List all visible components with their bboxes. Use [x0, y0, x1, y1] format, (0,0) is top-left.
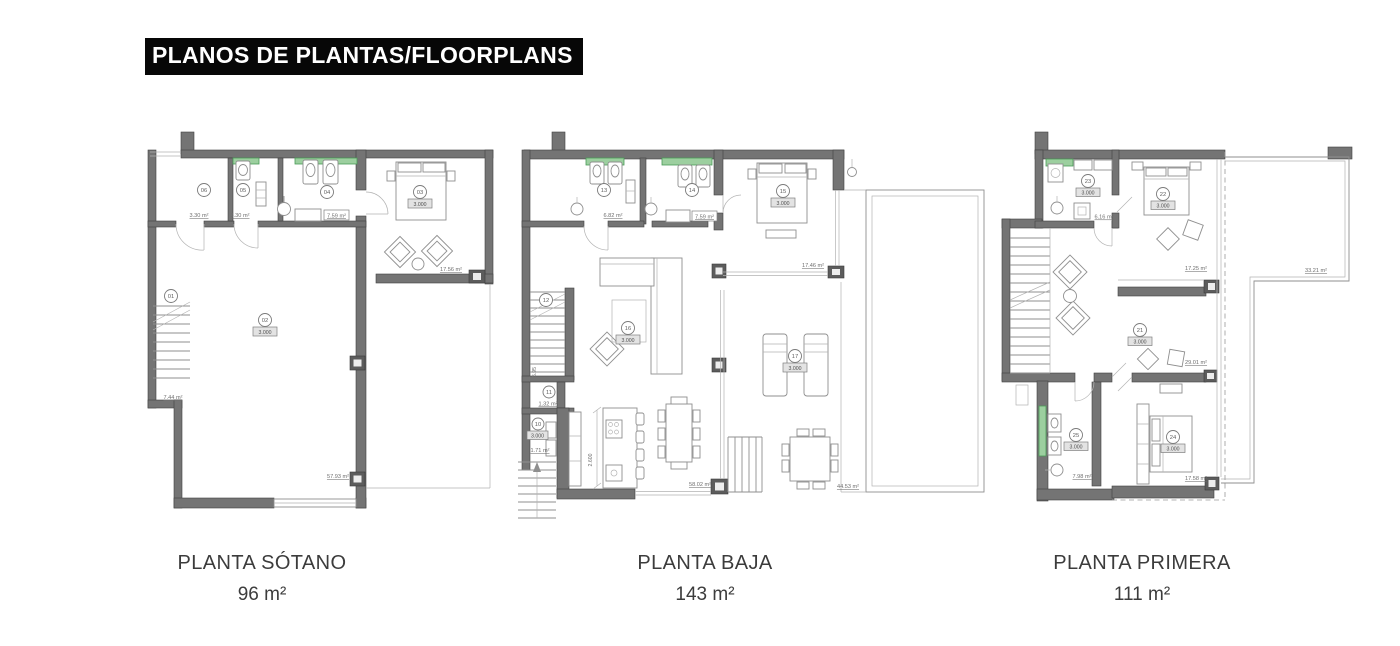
room-height: 3.000 — [259, 330, 272, 336]
ac-unit-icon — [1016, 385, 1028, 405]
plan-total-area: 143 m² — [555, 584, 855, 606]
room-area: 7.44 m² — [164, 395, 183, 401]
room-height: 3.000 — [414, 202, 427, 208]
floorplans-svg: 06 3.30 m² 05 3.30 m² 04 7.59 m² 03 3.00… — [0, 0, 1400, 646]
bench-icon — [766, 230, 796, 238]
stair-dimension: 5.95 — [532, 367, 538, 377]
room-number: 24 — [1170, 435, 1177, 441]
room-number: 14 — [689, 188, 696, 194]
stairs-icon — [153, 302, 190, 378]
room-area: 17.25 m² — [1185, 266, 1207, 272]
labels: 06 3.30 m² 05 3.30 m² 04 7.59 m² 03 3.00… — [164, 184, 463, 481]
room-height: 3.000 — [622, 338, 635, 344]
plan-name: PLANTA BAJA — [555, 552, 855, 575]
room-number: 01 — [168, 294, 174, 300]
room-area: 1.71 m² — [531, 448, 550, 454]
floorplan-sheet: PLANOS DE PLANTAS/FLOORPLANS — [0, 0, 1400, 646]
floorplan-baja: 13 6.82 m² 14 7.59 m² 15 3.000 17.46 m² … — [518, 132, 984, 518]
room-height: 3.000 — [789, 366, 802, 372]
room-height: 3.000 — [531, 434, 544, 440]
plan-name: PLANTA PRIMERA — [992, 552, 1292, 575]
plan-total-area: 96 m² — [112, 584, 412, 606]
toilet-icon — [1051, 202, 1063, 214]
room-area: 17.46 m² — [802, 263, 824, 269]
room-area: 17.56 m² — [440, 267, 462, 273]
terrace — [728, 334, 838, 492]
kitchen-dimension: 2.600 — [588, 453, 594, 466]
armchair-icons — [384, 235, 452, 270]
room-number: 10 — [535, 422, 541, 428]
room-number: 04 — [324, 190, 331, 196]
room-number: 23 — [1085, 179, 1091, 185]
room-height: 3.000 — [1167, 447, 1180, 453]
room-area: 3.30 m² — [231, 213, 250, 219]
terrace-area: 33.21 m² — [1305, 268, 1327, 274]
sofa-icon — [590, 258, 682, 374]
room-area: 7.59 m² — [327, 213, 346, 219]
hall-furniture — [1053, 255, 1185, 370]
room-height: 3.000 — [1134, 340, 1147, 346]
room-number: 15 — [780, 189, 786, 195]
caption-baja: PLANTA BAJA 143 m² — [555, 552, 855, 606]
room-height: 3.000 — [777, 201, 790, 207]
room-area: 58.02 m² — [689, 482, 711, 488]
outdoor-shower-icon — [848, 168, 857, 177]
room-number: 25 — [1073, 433, 1079, 439]
room-area: 3.30 m² — [190, 213, 209, 219]
floorplan-sotano: 06 3.30 m² 05 3.30 m² 04 7.59 m² 03 3.00… — [148, 132, 493, 508]
room-number: 06 — [201, 188, 207, 194]
dining-table-icon — [658, 397, 700, 469]
shower-icon — [1074, 203, 1090, 219]
toilet-icon — [236, 161, 250, 180]
side-table-icon — [1064, 290, 1077, 303]
room-number: 02 — [262, 318, 268, 324]
room-area: 1.32 m² — [539, 402, 558, 408]
room-number: 17 — [792, 354, 798, 360]
exterior-stairs-icon — [518, 462, 556, 518]
kitchen — [569, 407, 644, 489]
caption-sotano: PLANTA SÓTANO 96 m² — [112, 552, 412, 606]
room-area: 17.58 m² — [1185, 476, 1207, 482]
room-number: 22 — [1160, 192, 1166, 198]
room-area: 6.16 m² — [1095, 215, 1114, 221]
room-height: 3.000 — [1157, 204, 1170, 210]
caption-primera: PLANTA PRIMERA 111 m² — [992, 552, 1292, 606]
room-height: 3.000 — [1082, 191, 1095, 197]
plan-name: PLANTA SÓTANO — [112, 552, 412, 575]
room-number: 16 — [625, 326, 631, 332]
room-area: 29.01 m² — [1185, 360, 1207, 366]
plan-total-area: 111 m² — [992, 584, 1292, 606]
room-number: 13 — [601, 188, 607, 194]
room-number: 11 — [546, 390, 552, 396]
terrace-steps-icon — [728, 437, 762, 492]
bedroom-24-furniture — [1137, 384, 1192, 484]
room-number: 12 — [543, 298, 549, 304]
cabinet-icon — [256, 182, 266, 206]
toilet-icon — [1051, 464, 1063, 476]
room-height: 3.000 — [1070, 445, 1083, 451]
room-area: 7.59 m² — [695, 214, 714, 220]
toilet-icon — [645, 203, 657, 215]
room-area: 57.93 m² — [327, 474, 349, 480]
room-number: 03 — [417, 190, 423, 196]
side-table-icon — [412, 258, 424, 270]
room-area: 44.53 m² — [837, 484, 859, 490]
labels: 23 3.000 6.16 m² 22 3.000 17.25 m² 21 3.… — [1064, 175, 1327, 483]
outdoor-table-icon — [790, 437, 830, 481]
room-area: 7.98 m² — [1073, 474, 1092, 480]
room-area: 6.82 m² — [604, 213, 623, 219]
floorplan-primera: 23 3.000 6.16 m² 22 3.000 17.25 m² 21 3.… — [1002, 132, 1352, 501]
room-number: 21 — [1137, 328, 1143, 334]
pool — [841, 159, 984, 492]
toilet-icon — [571, 203, 583, 215]
sun-lounger-icon — [804, 334, 828, 396]
bench-icon — [1160, 384, 1182, 393]
room-number: 05 — [240, 188, 246, 194]
